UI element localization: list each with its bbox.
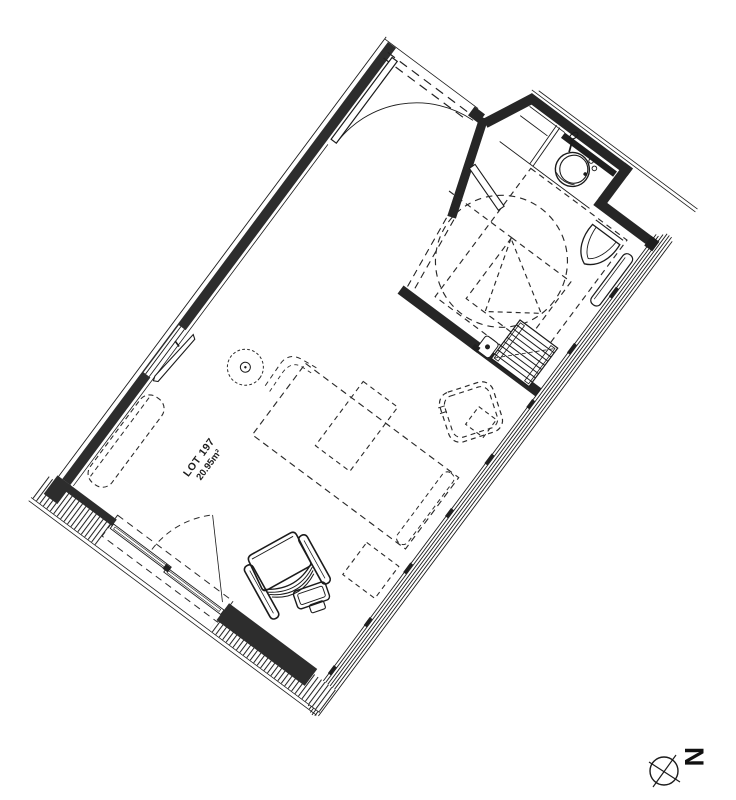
- svg-text:N: N: [679, 747, 709, 767]
